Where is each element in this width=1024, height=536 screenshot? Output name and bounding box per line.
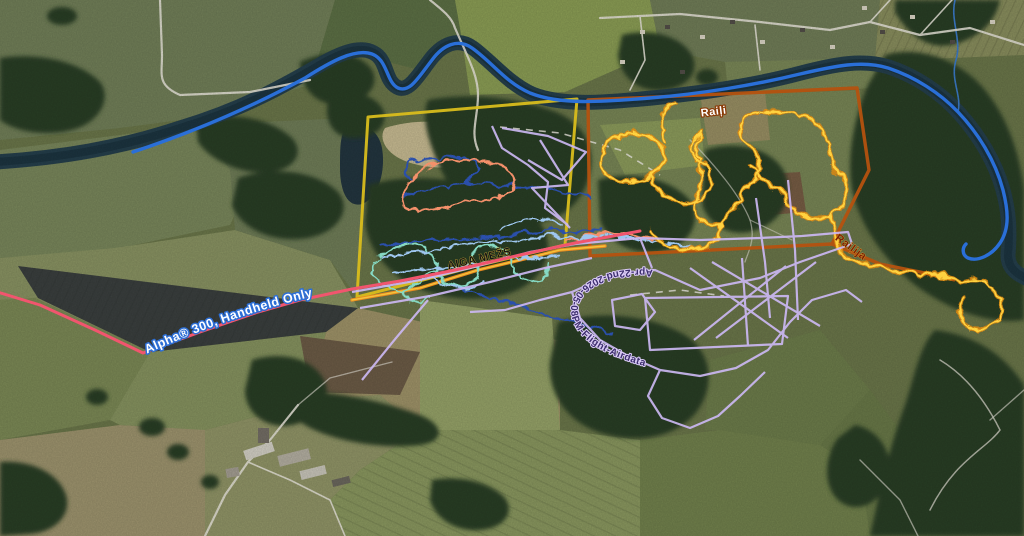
aerial-map: Alpha® 300, Handheld Only AIGA MEŽS Raiļ… bbox=[0, 0, 1024, 536]
map-viewport[interactable]: Alpha® 300, Handheld Only AIGA MEŽS Raiļ… bbox=[0, 0, 1024, 536]
